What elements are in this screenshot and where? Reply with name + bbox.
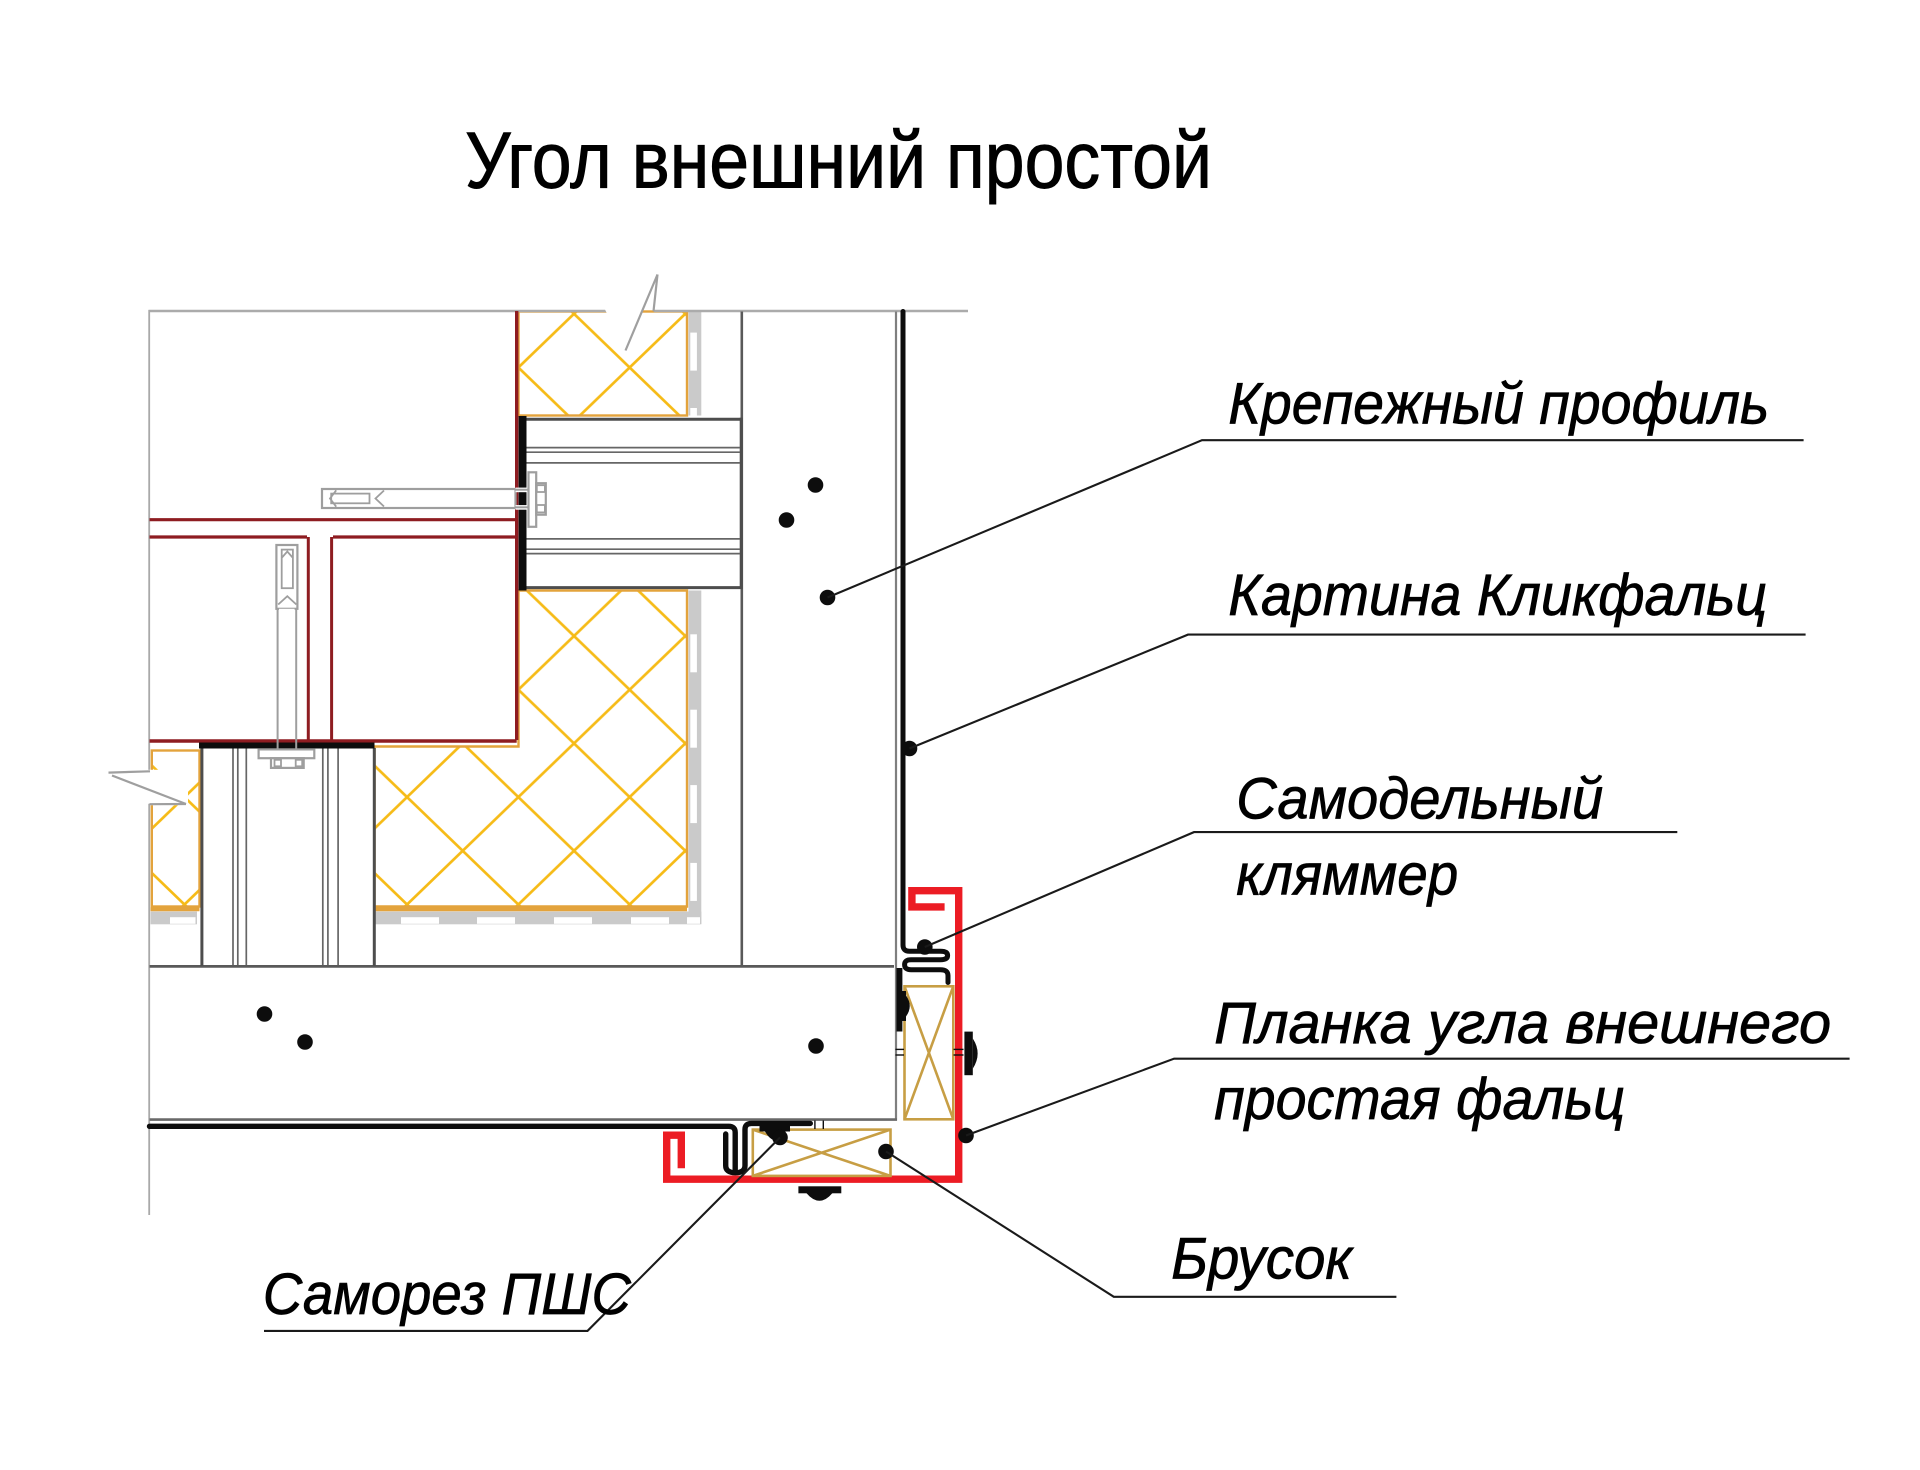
- svg-text:Самодельный: Самодельный: [1236, 766, 1603, 831]
- svg-text:простая фальц: простая фальц: [1214, 1067, 1625, 1132]
- svg-text:Саморез ПШС: Саморез ПШС: [263, 1262, 632, 1327]
- svg-text:Картина Кликфальц: Картина Кликфальц: [1228, 563, 1767, 628]
- svg-text:Угол внешний простой: Угол внешний простой: [465, 116, 1212, 205]
- svg-text:кляммер: кляммер: [1236, 842, 1458, 907]
- svg-text:Крепежный профиль: Крепежный профиль: [1228, 372, 1769, 437]
- svg-text:Брусок: Брусок: [1171, 1227, 1355, 1292]
- svg-text:Планка угла внешнего: Планка угла внешнего: [1214, 991, 1831, 1056]
